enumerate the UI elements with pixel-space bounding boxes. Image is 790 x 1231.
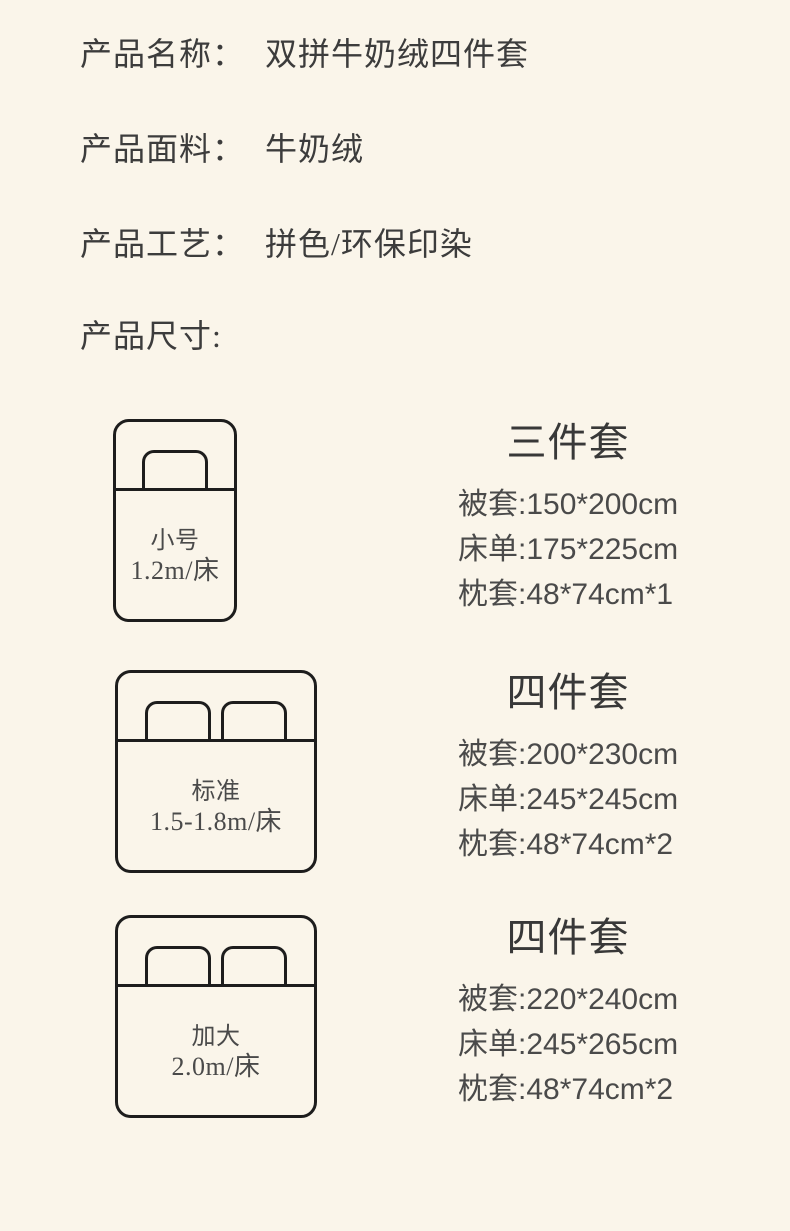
spec-item-sheet: 床单:245*265cm <box>458 1022 688 1067</box>
product-name-value: 双拼牛奶绒四件套 <box>265 36 529 72</box>
product-size-label: 产品尺寸: <box>80 318 222 354</box>
product-fabric-value: 牛奶绒 <box>265 131 364 167</box>
bed-label-large: 加大 2.0m/床 <box>118 1022 314 1082</box>
product-name-row: 产品名称：双拼牛奶绒四件套 <box>80 34 529 74</box>
bed-head-line <box>117 739 315 742</box>
spec-items: 被套:150*200cm 床单:175*225cm 枕套:48*74cm*1 <box>458 482 688 617</box>
bed-size: 2.0m/床 <box>118 1052 314 1082</box>
spec-block-small: 三件套 被套:150*200cm 床单:175*225cm 枕套:48*74cm… <box>448 420 688 617</box>
bed-name: 小号 <box>116 526 234 556</box>
bed-name: 标准 <box>118 777 314 807</box>
spec-block-standard: 四件套 被套:200*230cm 床单:245*245cm 枕套:48*74cm… <box>448 670 688 867</box>
spec-items: 被套:220*240cm 床单:245*265cm 枕套:48*74cm*2 <box>458 977 688 1112</box>
spec-item-sheet: 床单:175*225cm <box>458 527 688 572</box>
bed-size: 1.2m/床 <box>116 556 234 586</box>
pillow-icon <box>221 701 287 742</box>
product-spec-page: 产品名称：双拼牛奶绒四件套 产品面料：牛奶绒 产品工艺：拼色/环保印染 产品尺寸… <box>0 0 790 1231</box>
product-craft-value: 拼色/环保印染 <box>265 226 473 262</box>
spec-title: 四件套 <box>448 670 688 716</box>
bed-diagram-large: 加大 2.0m/床 <box>115 915 317 1118</box>
pillow-row <box>118 946 314 984</box>
spec-item-duvet: 被套:220*240cm <box>458 977 688 1022</box>
pillow-icon <box>142 450 208 491</box>
product-name-label: 产品名称： <box>80 36 245 72</box>
spec-item-pillowcase: 枕套:48*74cm*2 <box>458 822 688 867</box>
spec-title: 三件套 <box>448 420 688 466</box>
product-fabric-label: 产品面料： <box>80 131 245 167</box>
bed-head-line <box>115 488 235 491</box>
bed-label-small: 小号 1.2m/床 <box>116 526 234 586</box>
pillow-icon <box>145 946 211 987</box>
spec-item-duvet: 被套:150*200cm <box>458 482 688 527</box>
product-fabric-row: 产品面料：牛奶绒 <box>80 129 364 169</box>
product-craft-label: 产品工艺： <box>80 226 245 262</box>
spec-block-large: 四件套 被套:220*240cm 床单:245*265cm 枕套:48*74cm… <box>448 915 688 1112</box>
spec-item-sheet: 床单:245*245cm <box>458 777 688 822</box>
pillow-row <box>116 450 234 488</box>
bed-diagram-small: 小号 1.2m/床 <box>113 419 237 622</box>
product-craft-row: 产品工艺：拼色/环保印染 <box>80 224 473 264</box>
pillow-row <box>118 701 314 739</box>
bed-head-line <box>117 984 315 987</box>
spec-item-pillowcase: 枕套:48*74cm*1 <box>458 572 688 617</box>
pillow-icon <box>221 946 287 987</box>
spec-title: 四件套 <box>448 915 688 961</box>
bed-label-standard: 标准 1.5-1.8m/床 <box>118 777 314 837</box>
bed-name: 加大 <box>118 1022 314 1052</box>
bed-diagram-standard: 标准 1.5-1.8m/床 <box>115 670 317 873</box>
spec-items: 被套:200*230cm 床单:245*245cm 枕套:48*74cm*2 <box>458 732 688 867</box>
product-size-row: 产品尺寸: <box>80 316 222 356</box>
spec-item-duvet: 被套:200*230cm <box>458 732 688 777</box>
pillow-icon <box>145 701 211 742</box>
spec-item-pillowcase: 枕套:48*74cm*2 <box>458 1067 688 1112</box>
bed-size: 1.5-1.8m/床 <box>118 807 314 837</box>
